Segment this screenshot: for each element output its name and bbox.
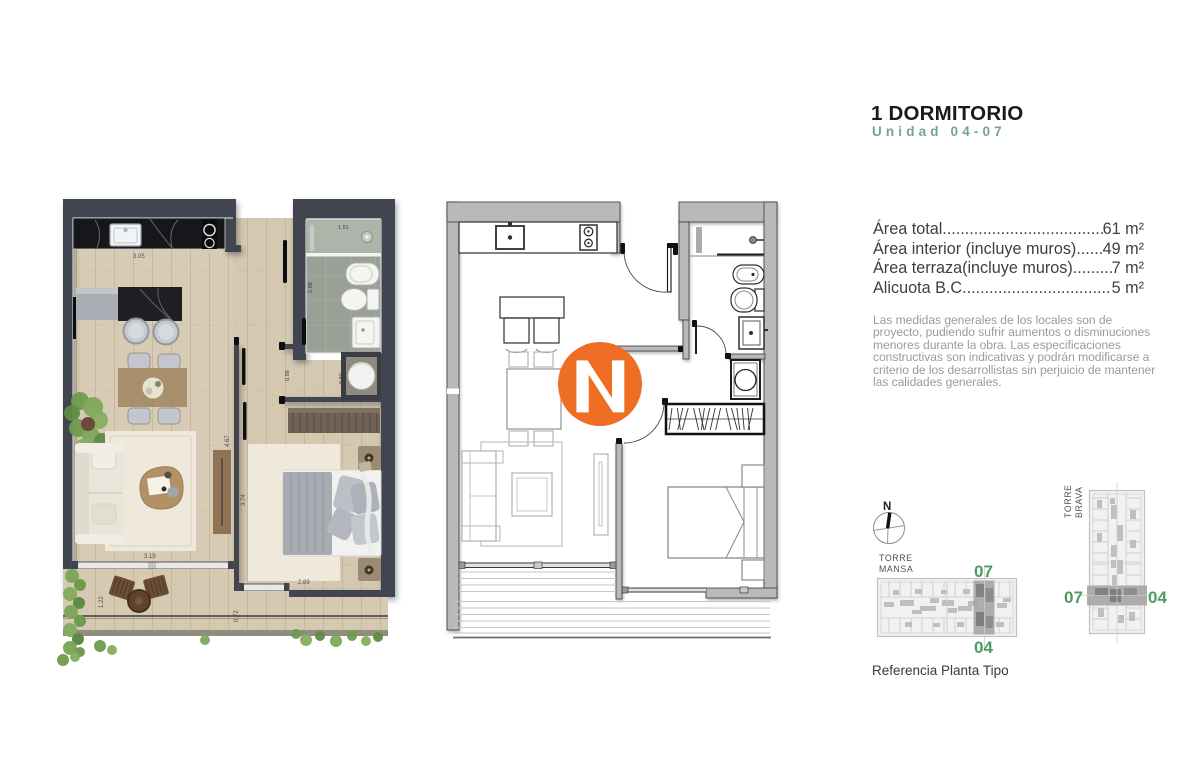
- svg-text:07: 07: [1064, 588, 1083, 607]
- svg-text:04: 04: [974, 638, 993, 657]
- svg-text:TORRE: TORRE: [1063, 484, 1073, 518]
- svg-text:TORRE: TORRE: [879, 553, 913, 563]
- svg-text:MANSA: MANSA: [879, 564, 913, 574]
- svg-text:07: 07: [974, 562, 993, 581]
- svg-text:04: 04: [1148, 588, 1167, 607]
- svg-text:N: N: [883, 501, 891, 513]
- svg-text:BRAVA: BRAVA: [1074, 486, 1084, 518]
